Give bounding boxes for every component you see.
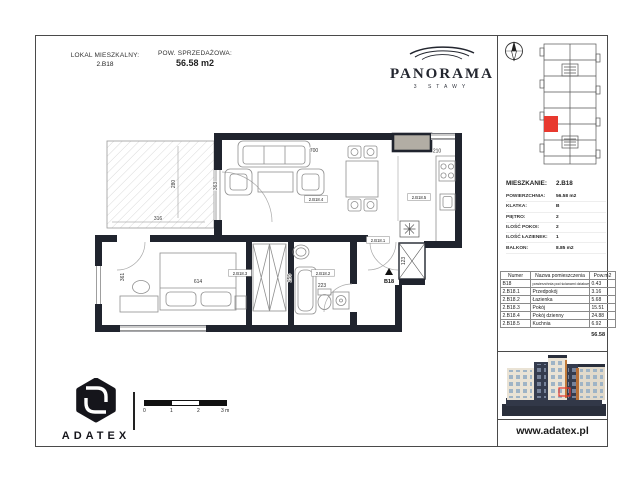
vent-icon	[400, 221, 419, 237]
dim-balcony-depth: 280	[171, 180, 177, 189]
room-label-hall: 2.B18.1	[371, 238, 386, 243]
balcony	[107, 141, 214, 228]
entrance-label: B18	[384, 279, 394, 285]
floor-plan-sheet: LOKAL MIESZKALNY: 2.B18 POW. SPRZEDAŻOWA…	[0, 0, 640, 480]
dim-kitchen-width: 210	[433, 149, 442, 155]
room-label-kitchen: 2.B18.5	[412, 195, 427, 200]
dim-living-depth: 363	[213, 182, 219, 191]
dim-shaft: 123	[401, 257, 407, 266]
dim-balcony-width: 316	[154, 216, 163, 222]
room-label-bedroom: 2.B18.3	[233, 271, 248, 276]
dim-living-width: 700	[310, 148, 319, 154]
dim-bedroom-depth: 361	[120, 273, 126, 282]
floor-plan-drawing: 2.B18.1 2.B18.2 2.B18.3 2.B18.4 2.B18.5 …	[0, 0, 640, 480]
entrance-marker: B18	[384, 268, 394, 285]
dim-bedroom-width: 614	[194, 279, 203, 285]
room-label-living: 2.B18.4	[309, 197, 324, 202]
dim-bath-width: 223	[318, 283, 327, 289]
wall-recess	[393, 134, 431, 151]
dim-bath-depth: 255	[287, 274, 293, 283]
room-label-bath: 2.B18.2	[316, 271, 331, 276]
